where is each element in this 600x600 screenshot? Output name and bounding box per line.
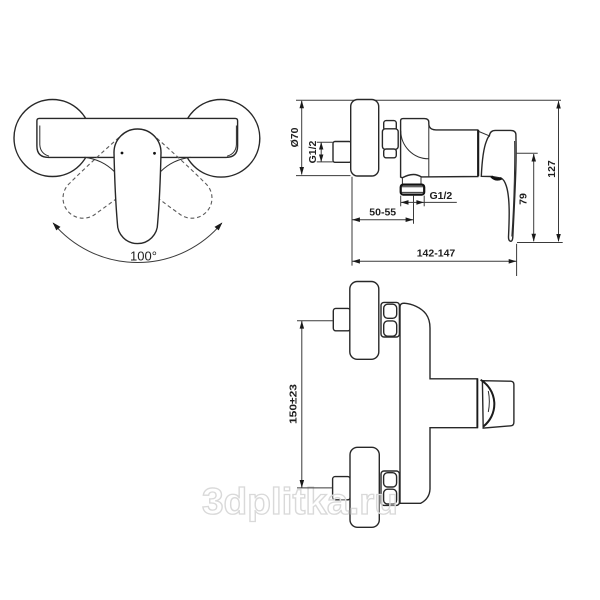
svg-text:G1/2: G1/2 [430, 190, 453, 202]
svg-text:142-147: 142-147 [417, 248, 456, 260]
svg-text:G1/2: G1/2 [307, 140, 319, 163]
svg-text:100°: 100° [130, 249, 157, 264]
svg-text:79: 79 [518, 193, 530, 205]
svg-text:3dplitka.ru: 3dplitka.ru [202, 481, 398, 522]
svg-text:127: 127 [546, 160, 558, 178]
svg-text:Ø70: Ø70 [289, 127, 301, 147]
svg-text:150±23: 150±23 [288, 384, 300, 424]
svg-text:50-55: 50-55 [369, 206, 396, 218]
